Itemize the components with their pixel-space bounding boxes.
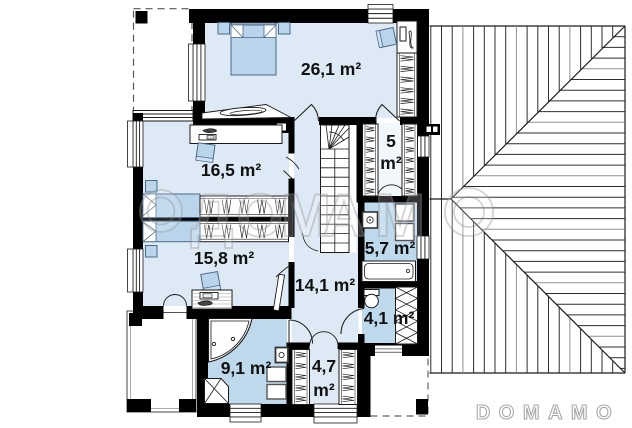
svg-text:m²: m² [313,380,335,400]
svg-text:5: 5 [386,131,396,151]
svg-text:А: А [322,182,365,249]
svg-text:О: О [237,182,284,249]
svg-text:DOMAMO: DOMAMO [476,402,620,424]
svg-text:М: М [375,182,425,249]
svg-text:15,8 m²: 15,8 m² [194,248,254,268]
svg-text:m²: m² [380,153,402,173]
svg-text:14,1 m²: 14,1 m² [295,275,355,295]
svg-text:26,1 m²: 26,1 m² [301,59,361,79]
svg-text:4,1 m²: 4,1 m² [364,308,415,328]
svg-text:Д: Д [191,182,234,249]
svg-text:9,1 m²: 9,1 m² [221,358,272,378]
svg-text:16,5 m²: 16,5 m² [201,160,261,180]
svg-text:4,7: 4,7 [312,356,336,376]
